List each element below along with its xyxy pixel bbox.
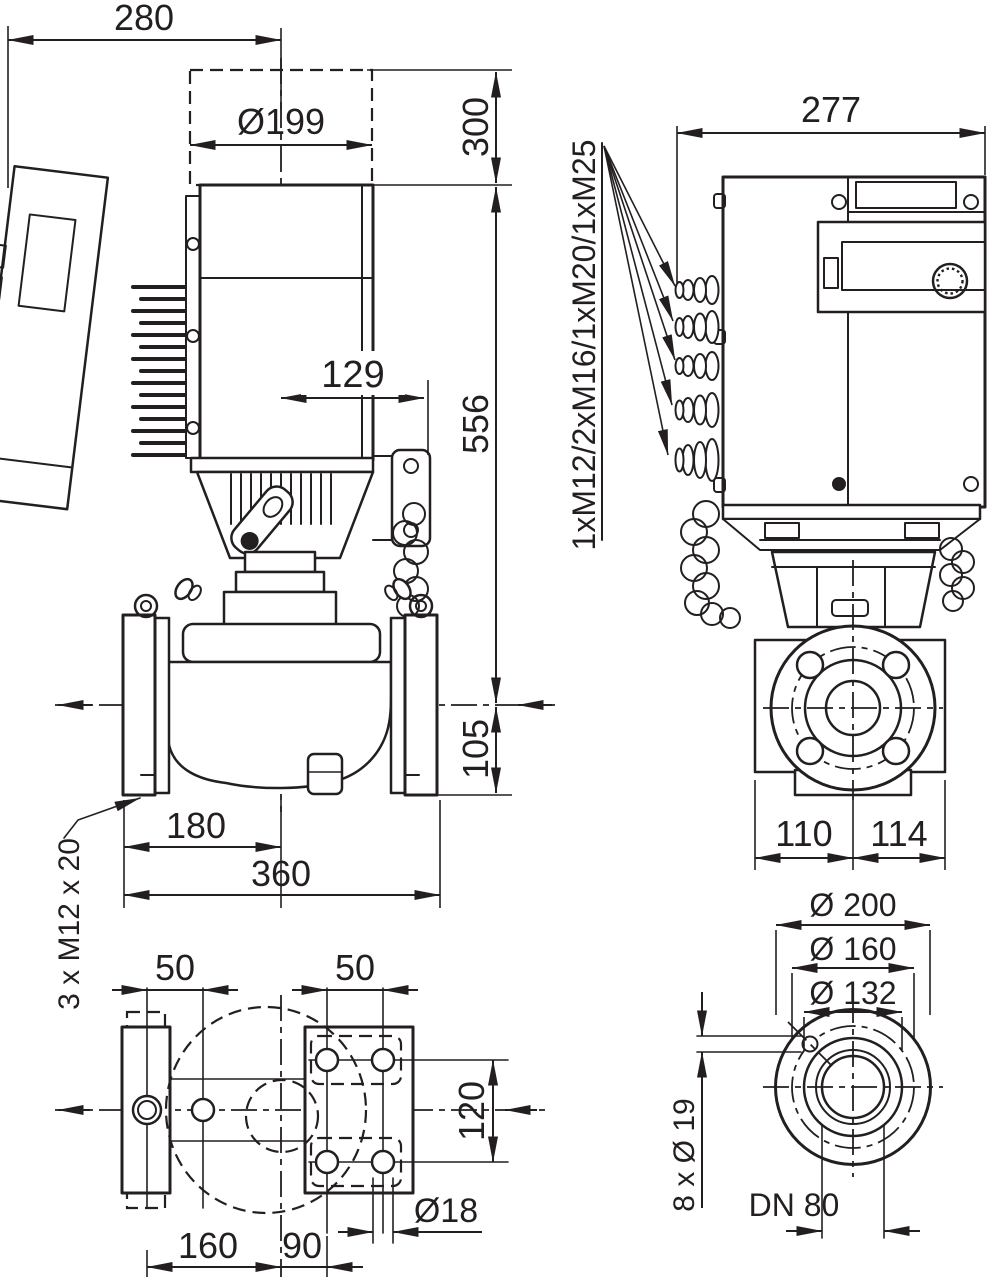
dim-label-300: 300 (455, 97, 496, 157)
dim-label-hole-diameter: Ø18 (414, 1192, 478, 1230)
left-foot-tab (127, 1193, 165, 1208)
coiled-cable-right (940, 538, 974, 611)
drain-plug-boss (308, 754, 342, 794)
dim-label-120: 120 (451, 1081, 492, 1141)
sensor-bracket (392, 450, 430, 546)
gland-leader-fan (604, 146, 675, 455)
seal-housing-ring (183, 624, 380, 662)
nominal-bore-label: DN 80 (749, 1187, 840, 1223)
dim-label-outer-diameter: Ø 200 (809, 887, 896, 923)
counter-flange (391, 618, 405, 793)
dim-label-180: 180 (166, 805, 226, 846)
dim-label-129: 129 (321, 354, 384, 396)
dim-label-160: 160 (178, 1225, 238, 1266)
module-mounting-strip (186, 196, 200, 458)
vent-plug (832, 600, 868, 616)
foot-hole (316, 1151, 338, 1173)
cable-gland-label: 1xM12/2xM16/1xM20/1xM25 (566, 140, 602, 551)
dim-label-280: 280 (114, 0, 174, 38)
dimensional-drawing-page: 280 Ø199 300 556 105 129 180 360 3 x M12… (0, 0, 988, 1280)
discharge-flange (405, 615, 437, 795)
foot-hole (372, 1049, 394, 1071)
dim-label-fan-diameter: Ø199 (237, 101, 325, 142)
motor-flange (191, 458, 373, 472)
dim-label-110: 110 (775, 813, 832, 854)
foot-thread-note: 3 x M12 x 20 (53, 838, 86, 1010)
dim-label-277: 277 (801, 89, 861, 130)
lantern-step (236, 572, 324, 592)
motor-mounting-plate (723, 505, 980, 519)
dim-label-50-left: 50 (155, 947, 195, 988)
bolt-holes-note: 8 x Ø 19 (668, 1098, 701, 1211)
dim-label-raised-face: Ø 132 (809, 975, 896, 1011)
suction-flange (123, 615, 155, 795)
lantern-step (224, 592, 336, 626)
counter-flange (155, 618, 169, 793)
dim-label-50-right: 50 (335, 947, 375, 988)
foot-hole (316, 1049, 338, 1071)
foot-plan-view: 50 50 120 Ø18 160 90 (55, 947, 545, 1277)
motor-body (200, 185, 373, 460)
dim-label-114: 114 (870, 813, 927, 854)
control-module (0, 165, 108, 509)
dim-label-90: 90 (282, 1225, 322, 1266)
dim-label-556: 556 (455, 394, 496, 454)
foot-thread-leader (64, 798, 140, 838)
dim-label-bolt-circle: Ø 160 (809, 931, 896, 967)
dim-label-360: 360 (251, 853, 311, 894)
flange-detail-view: Ø 200 Ø 160 Ø 132 8 x Ø 19 DN 80 (668, 887, 943, 1238)
pump-rear-view: 277 (566, 89, 985, 870)
lantern-step (245, 552, 315, 572)
housing-screw (832, 477, 846, 491)
pump-dimensional-drawing: 280 Ø199 300 556 105 129 180 360 3 x M12… (0, 0, 988, 1280)
heatsink-fins (133, 287, 186, 455)
left-foot-tab (127, 1012, 165, 1027)
pump-volute (165, 662, 391, 788)
foot-hole (372, 1151, 394, 1173)
dim-label-105: 105 (455, 719, 496, 779)
cable-glands (676, 276, 719, 481)
pump-side-view: 280 Ø199 300 556 105 129 180 360 3 x M12… (0, 0, 555, 1010)
foot-hole (192, 1099, 214, 1121)
